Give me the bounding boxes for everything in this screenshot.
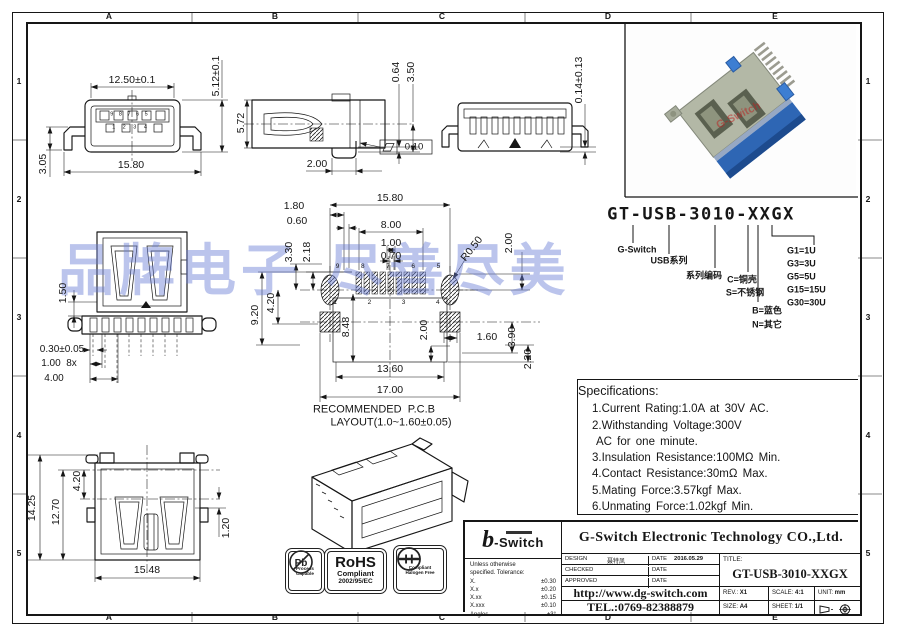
rohs-text: RoHS — [335, 556, 376, 570]
company-name: G-Switch Electronic Technology CO.,Ltd. — [562, 522, 860, 554]
logo-name: -Switch — [494, 535, 544, 550]
logo-b-glyph: b — [482, 528, 494, 552]
product-photo-render: G-Switch — [627, 24, 856, 195]
tolerance-table: Unless otherwise specified. Tolerance: X… — [465, 559, 562, 614]
spec-item: 1.Current Rating:1.0A at 30V AC. — [578, 401, 856, 417]
rohs-logo: RoHS Compliant 2002/95/EC — [324, 548, 387, 594]
company-url: http://www.dg-switch.com — [562, 587, 719, 601]
isometric-view — [312, 438, 468, 553]
rohs-compliant-text: Compliant — [337, 570, 374, 578]
engineering-drawing-page: 品牌电子 尽善尽美 G-Switch — [0, 0, 900, 636]
specifications-title: Specifications: — [578, 383, 856, 399]
halogen-free-logo: H CompliantHalogen Free — [393, 545, 447, 594]
front-view — [46, 60, 228, 177]
checked-row: CHECKED DATE — [562, 565, 719, 576]
design-row: DESIGN 聂特凤 DATE 2016.05.29 — [562, 554, 719, 565]
pb-free-icon: Pb — [286, 549, 316, 577]
tolerance-note: Unless otherwise — [470, 561, 556, 569]
spec-item: 5.Mating Force:3.57kgf Max. — [578, 483, 856, 499]
halogen-free-icon: H — [394, 546, 424, 574]
rear-view — [442, 103, 596, 165]
spec-item: 4.Contact Resistance:30mΩ Max. — [578, 466, 856, 482]
logo-smallprint — [506, 531, 532, 534]
title-cell: TITLE: GT-USB-3010-XXGX — [719, 554, 860, 587]
title-value: GT-USB-3010-XXGX — [720, 567, 860, 582]
spec-item: 2.Withstanding Voltage:300V — [578, 418, 856, 434]
size-sheet-row: SIZE: A4 SHEET: 1/1 — [719, 601, 860, 614]
specifications: Specifications: 1.Current Rating:1.0A at… — [578, 383, 856, 515]
rohs-directive-text: 2002/95/EC — [338, 578, 372, 586]
watermark-text: 品牌电子 尽善尽美 — [58, 226, 571, 307]
spec-item: AC for one minute. — [578, 434, 856, 450]
pb-free-logo: Pb ProcessCapable — [285, 548, 325, 594]
company-tel: TEL.:0769-82388879 — [562, 601, 719, 614]
spec-item: 6.Unmating Force:1.02kgf Min. — [578, 499, 856, 515]
side-view — [244, 84, 432, 175]
bottom-view — [28, 445, 226, 582]
title-label: TITLE: — [723, 556, 743, 563]
spec-item: 3.Insulation Resistance:100MΩ Min. — [578, 450, 856, 466]
part-number-tree-lines — [633, 225, 814, 302]
svg-text:H: H — [404, 552, 413, 567]
product-photo: G-Switch — [627, 24, 856, 195]
company-logo: b -Switch — [465, 522, 562, 559]
title-block: b -Switch Unless otherwise specified. To… — [463, 520, 858, 612]
rev-scale-unit-row: REV.: X1 SCALE: 4:1 UNIT: mm — [719, 587, 860, 601]
tolerance-note: specified. Tolerance: — [470, 569, 556, 577]
projection-symbol-icon — [814, 601, 858, 614]
